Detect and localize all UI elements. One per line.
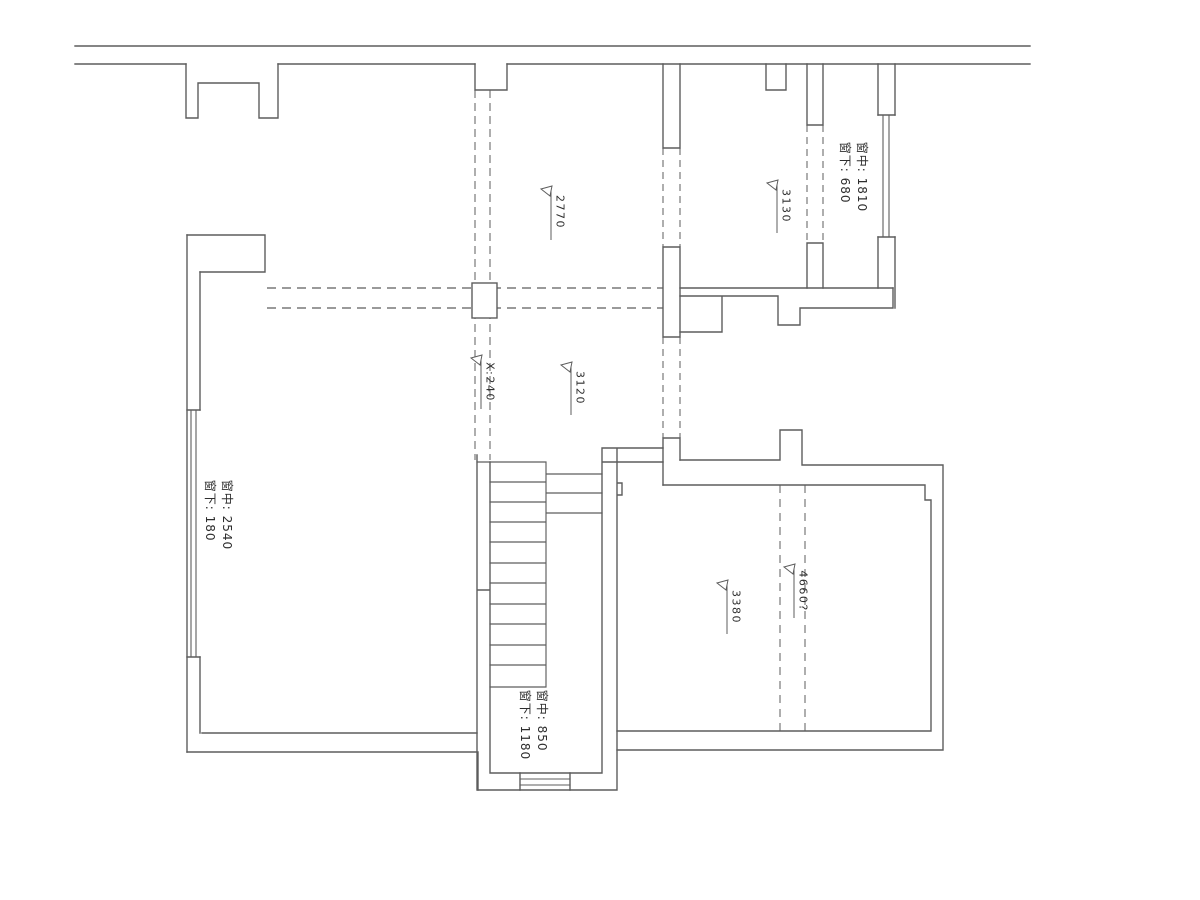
window-left bbox=[187, 410, 200, 657]
dimension-leaders bbox=[471, 180, 795, 634]
window-bottom bbox=[520, 773, 570, 790]
top-notch bbox=[475, 64, 507, 90]
left-wall bbox=[187, 235, 200, 752]
dimension-4660: 4660? bbox=[797, 570, 810, 611]
window-sill-text: 窗下: 680 bbox=[836, 142, 853, 212]
leader-x240 bbox=[471, 355, 482, 409]
walls bbox=[75, 46, 1030, 790]
floor-plan-canvas bbox=[0, 0, 1200, 900]
leader-2770 bbox=[541, 186, 552, 240]
bottom-left-wall bbox=[187, 733, 478, 790]
window-mid-text: 窗中: 1810 bbox=[853, 142, 870, 212]
leader-3380 bbox=[717, 580, 728, 634]
dimension-3120: 3120 bbox=[574, 371, 587, 405]
top-wall bbox=[75, 46, 1030, 64]
floor-plan: 窗中: 1810 窗下: 680 窗中: 2540 窗下: 180 窗中: 85… bbox=[0, 0, 1200, 900]
balcony-walls bbox=[680, 288, 893, 332]
dimension-3130: 3130 bbox=[780, 189, 793, 223]
window-mid-text: 窗中: 2540 bbox=[218, 480, 235, 550]
dimension-x240: X:240 bbox=[484, 362, 497, 402]
window-right bbox=[878, 64, 895, 308]
window-sill-text: 窗下: 1180 bbox=[516, 690, 533, 760]
window-mid-text: 窗中: 850 bbox=[533, 690, 550, 760]
left-pier bbox=[187, 235, 265, 272]
leader-4660 bbox=[784, 564, 795, 618]
dimension-3380: 3380 bbox=[730, 590, 743, 624]
window-label-bottom: 窗中: 850 窗下: 1180 bbox=[516, 690, 550, 760]
leader-3130 bbox=[767, 180, 778, 233]
flue-box bbox=[766, 64, 786, 90]
dimension-2770: 2770 bbox=[554, 195, 567, 229]
middle-divider-wall bbox=[663, 64, 680, 485]
entry-alcove bbox=[186, 64, 278, 118]
column bbox=[472, 283, 497, 318]
dashed-axis-lines bbox=[267, 90, 823, 731]
stairwell-walls bbox=[477, 448, 663, 790]
window-sill-text: 窗下: 180 bbox=[201, 480, 218, 550]
stairs bbox=[477, 462, 602, 687]
leader-3120 bbox=[561, 362, 572, 415]
window-label-left: 窗中: 2540 窗下: 180 bbox=[201, 480, 235, 550]
right-divider-wall bbox=[807, 64, 823, 288]
window-label-right: 窗中: 1810 窗下: 680 bbox=[836, 142, 870, 212]
